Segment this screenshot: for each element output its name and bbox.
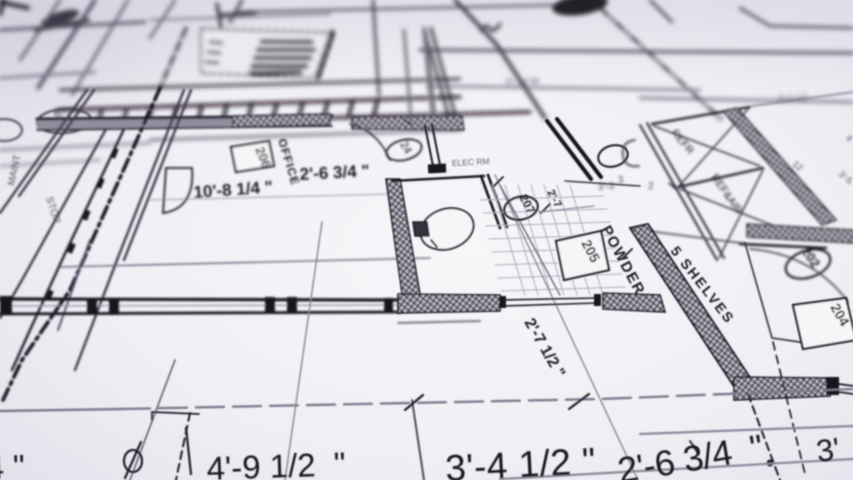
svg-text:4'-9 1/2 ": 4'-9 1/2 ": [206, 445, 346, 480]
svg-text:3'-4 1/2 ": 3'-4 1/2 ": [444, 440, 597, 480]
svg-text:ELEC RM: ELEC RM: [452, 156, 490, 168]
svg-text:4 ": 4 ": [0, 448, 25, 480]
svg-text:10 1-4 08: 10 1-4 08: [505, 77, 539, 86]
svg-text:2'-6 3/4 ": 2'-6 3/4 ": [299, 161, 370, 184]
svg-text:3'-3: 3'-3: [597, 181, 615, 193]
svg-text:3': 3': [814, 431, 842, 469]
svg-text:2: 2: [648, 181, 654, 192]
